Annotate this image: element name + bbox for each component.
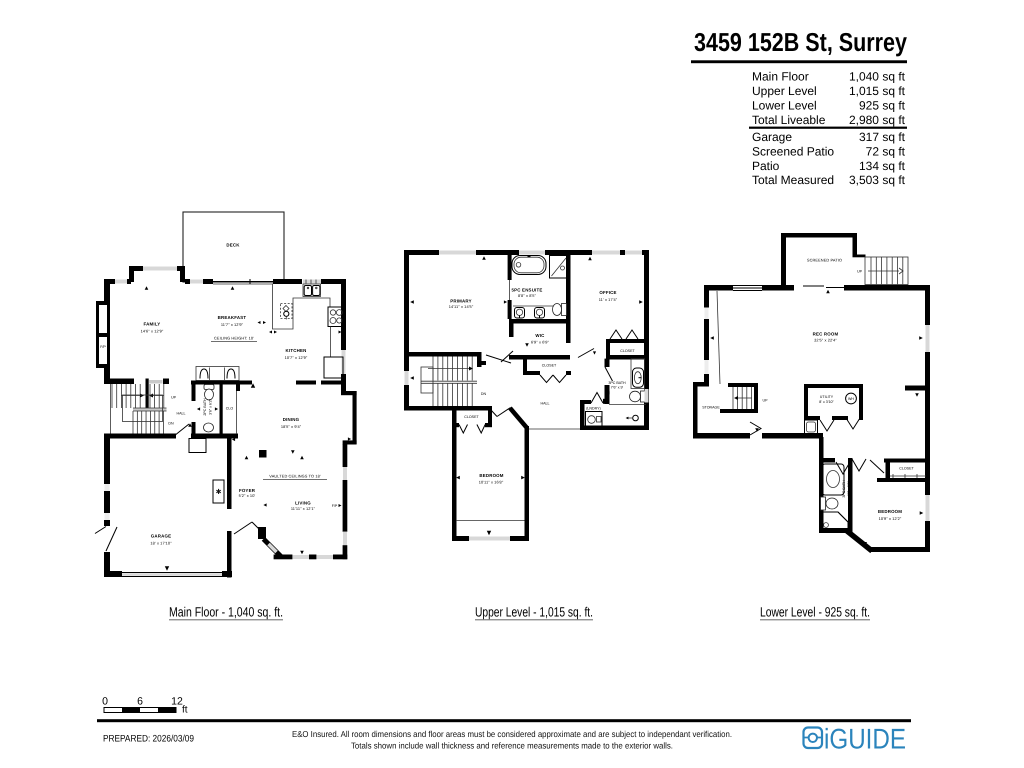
- svg-text:5PC ENSUITE: 5PC ENSUITE: [512, 288, 543, 293]
- svg-text:UP: UP: [763, 399, 769, 403]
- svg-text:Main Floor - 1,040 sq. ft.: Main Floor - 1,040 sq. ft.: [169, 605, 283, 620]
- svg-text:UTILITY: UTILITY: [820, 395, 834, 399]
- svg-text:PRIMARY: PRIMARY: [450, 299, 471, 304]
- svg-text:3PC BATH: 3PC BATH: [842, 480, 846, 498]
- svg-text:CEILING HEIGHT: 10': CEILING HEIGHT: 10': [214, 336, 254, 341]
- svg-text:DINING: DINING: [283, 417, 300, 422]
- svg-text:32'5" x 22'4": 32'5" x 22'4": [814, 338, 837, 343]
- svg-text:BEDROOM: BEDROOM: [878, 509, 902, 514]
- svg-text:72 sq ft: 72 sq ft: [866, 144, 906, 158]
- svg-text:10'11" x 16'8": 10'11" x 16'8": [479, 479, 504, 484]
- svg-text:317 sq ft: 317 sq ft: [859, 130, 906, 144]
- svg-text:OFFICE: OFFICE: [599, 290, 616, 295]
- svg-text:3459 152B St, Surrey: 3459 152B St, Surrey: [694, 27, 907, 57]
- svg-text:1,015 sq ft: 1,015 sq ft: [849, 84, 906, 98]
- svg-text:925 sq ft: 925 sq ft: [859, 98, 906, 112]
- svg-text:WIC: WIC: [535, 333, 545, 338]
- svg-text:REC ROOM: REC ROOM: [813, 332, 839, 337]
- svg-text:11'7" x 12'9": 11'7" x 12'9": [221, 322, 244, 327]
- svg-text:8'8" x 8'5": 8'8" x 8'5": [518, 293, 537, 298]
- svg-text:KITCHEN: KITCHEN: [286, 348, 307, 353]
- svg-text:Totals shown include wall thic: Totals shown include wall thickness and …: [351, 741, 673, 751]
- svg-text:HALL: HALL: [177, 412, 186, 416]
- svg-text:11'11" x 12'1": 11'11" x 12'1": [291, 506, 316, 511]
- svg-text:CLOSET: CLOSET: [899, 466, 914, 470]
- svg-text:VAULTED CEILINGS TO 18': VAULTED CEILINGS TO 18': [269, 474, 321, 479]
- svg-text:6'9" x 6'9": 6'9" x 6'9": [531, 340, 550, 345]
- svg-text:E&O Insured. All room dimensio: E&O Insured. All room dimensions and flo…: [292, 729, 732, 739]
- svg-text:7'6" x 9': 7'6" x 9': [611, 386, 624, 390]
- svg-text:CLO: CLO: [226, 407, 234, 411]
- svg-text:DN: DN: [481, 392, 487, 396]
- svg-text:Total Measured: Total Measured: [752, 173, 834, 187]
- svg-text:Screened Patio: Screened Patio: [752, 144, 834, 158]
- svg-text:2,980 sq ft: 2,980 sq ft: [849, 113, 906, 127]
- svg-text:134 sq ft: 134 sq ft: [859, 159, 906, 173]
- svg-text:14'6" x 12'9": 14'6" x 12'9": [141, 329, 164, 334]
- svg-text:iGUIDE: iGUIDE: [824, 724, 906, 756]
- svg-text:ft: ft: [182, 705, 188, 716]
- svg-text:8' x 3'10": 8' x 3'10": [819, 400, 834, 404]
- svg-text:DECK: DECK: [226, 243, 240, 248]
- svg-text:UP: UP: [857, 270, 863, 274]
- svg-text:SCREENED PATIO: SCREENED PATIO: [807, 258, 842, 263]
- svg-text:WH: WH: [848, 397, 854, 401]
- svg-text:14'11" x 14'5": 14'11" x 14'5": [449, 304, 474, 309]
- svg-text:10'7" x 12'9": 10'7" x 12'9": [285, 355, 308, 360]
- svg-text:2PC BATH: 2PC BATH: [203, 398, 207, 416]
- svg-text:BREAKFAST: BREAKFAST: [218, 315, 247, 320]
- svg-text:STORAGE: STORAGE: [702, 406, 720, 410]
- svg-text:1,040 sq ft: 1,040 sq ft: [849, 69, 906, 83]
- svg-text:Lower Level - 925 sq. ft.: Lower Level - 925 sq. ft.: [760, 605, 870, 620]
- svg-text:✱: ✱: [216, 488, 222, 496]
- svg-text:GARAGE: GARAGE: [151, 534, 171, 539]
- svg-text:DN: DN: [168, 422, 174, 426]
- svg-text:HALL: HALL: [541, 402, 550, 406]
- svg-text:BEDROOM: BEDROOM: [479, 473, 503, 478]
- svg-text:0: 0: [102, 696, 108, 708]
- svg-text:UP: UP: [171, 396, 177, 400]
- svg-text:CLOSET: CLOSET: [542, 364, 557, 368]
- svg-text:F/P: F/P: [100, 345, 106, 349]
- svg-text:4'8" x 9'1": 4'8" x 9'1": [847, 480, 851, 496]
- svg-text:Main Floor: Main Floor: [752, 69, 809, 83]
- svg-text:18' x 17'10": 18' x 17'10": [150, 541, 172, 546]
- svg-text:F/P: F/P: [332, 504, 338, 508]
- svg-text:PREPARED: 2026/03/09: PREPARED: 2026/03/09: [103, 734, 194, 745]
- svg-text:6: 6: [137, 696, 143, 708]
- svg-text:Upper Level - 1,015 sq. ft.: Upper Level - 1,015 sq. ft.: [475, 605, 593, 620]
- svg-text:CLOSET: CLOSET: [620, 349, 635, 353]
- svg-text:(LNDRY): (LNDRY): [586, 407, 601, 411]
- svg-text:FAMILY: FAMILY: [144, 322, 161, 327]
- svg-text:5'2" x 10': 5'2" x 10': [239, 493, 256, 498]
- svg-text:11' x 17'4": 11' x 17'4": [599, 297, 618, 302]
- svg-text:3,503 sq ft: 3,503 sq ft: [849, 173, 906, 187]
- svg-text:3'6" x 6'2": 3'6" x 6'2": [209, 398, 213, 414]
- svg-text:Garage: Garage: [752, 130, 792, 144]
- svg-text:Lower Level: Lower Level: [752, 98, 817, 112]
- svg-text:Upper Level: Upper Level: [752, 84, 817, 98]
- svg-text:Total Liveable: Total Liveable: [752, 113, 826, 127]
- svg-text:LIVING: LIVING: [295, 501, 311, 506]
- svg-text:Patio: Patio: [752, 159, 780, 173]
- svg-text:18'5" x 9'4": 18'5" x 9'4": [281, 424, 302, 429]
- svg-text:3PC BATH: 3PC BATH: [608, 381, 626, 385]
- svg-text:10'9" x 12'2": 10'9" x 12'2": [879, 516, 902, 521]
- svg-text:CLOSET: CLOSET: [464, 415, 479, 419]
